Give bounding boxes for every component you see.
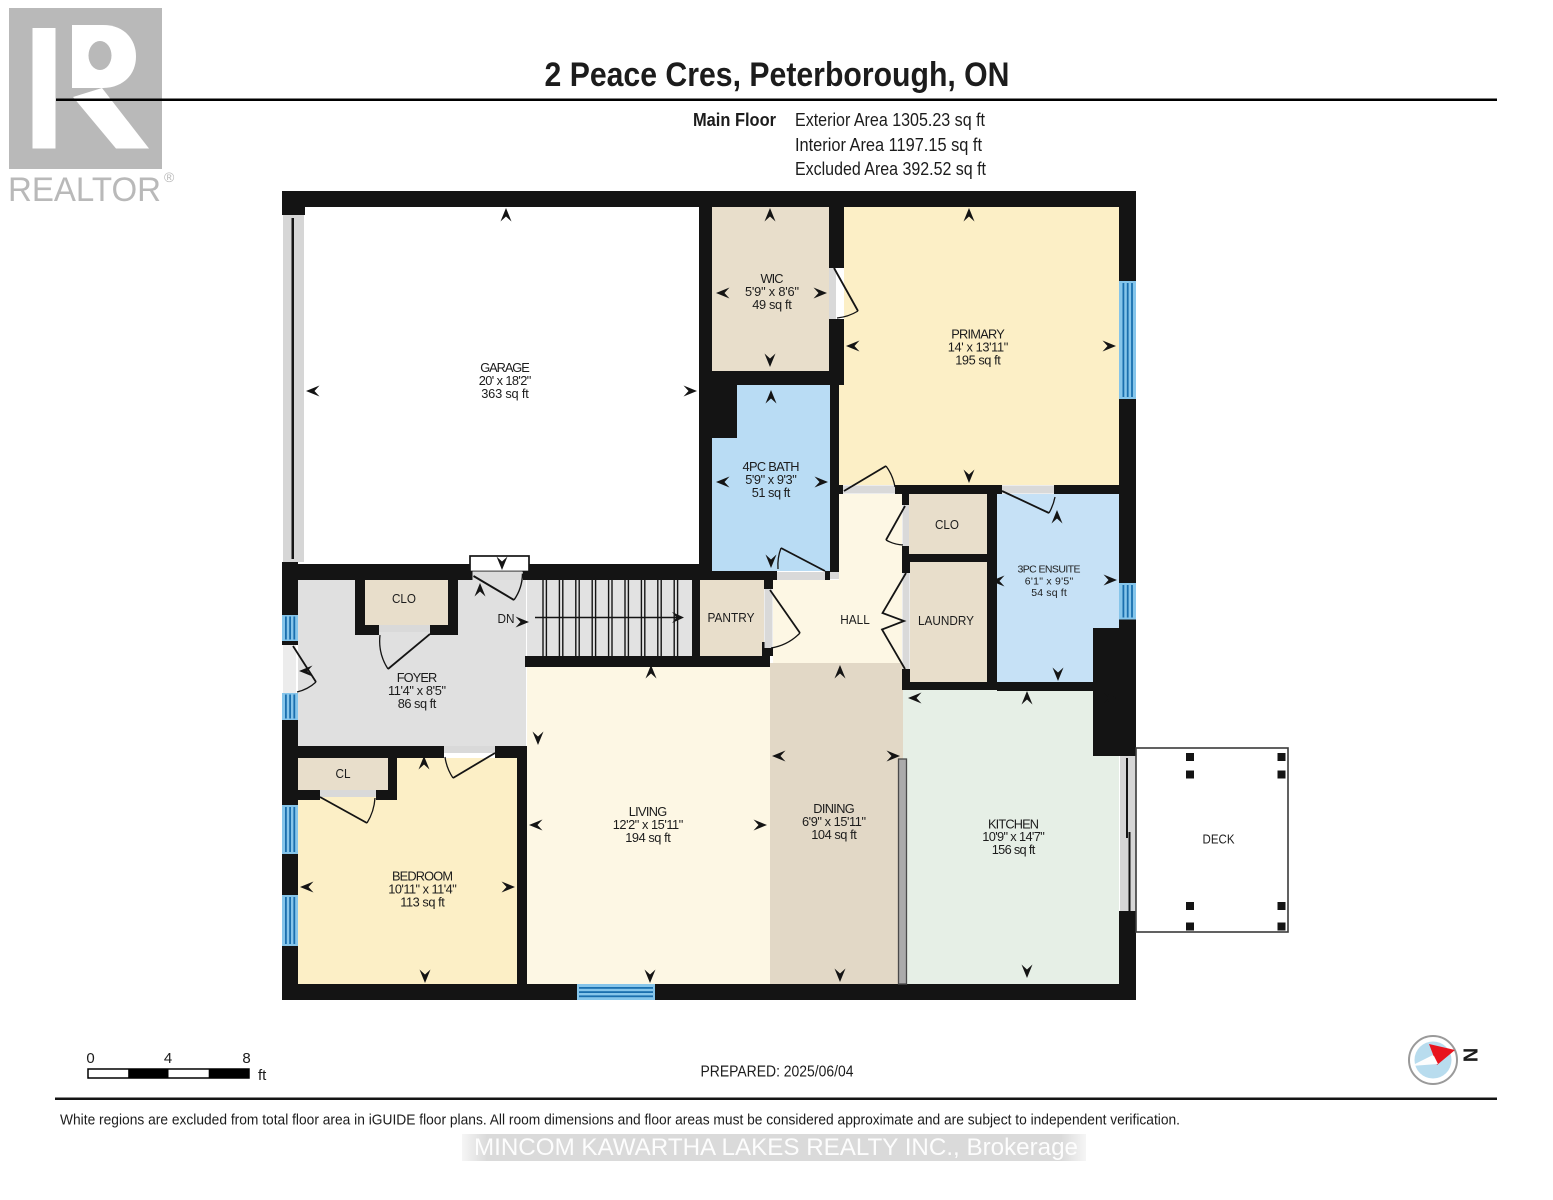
- svg-text:CLO: CLO: [392, 591, 416, 606]
- svg-text:LAUNDRY: LAUNDRY: [918, 613, 974, 628]
- svg-text:113 sq ft: 113 sq ft: [400, 895, 445, 910]
- svg-text:6'1" x 9'5": 6'1" x 9'5": [1025, 576, 1074, 588]
- svg-text:0: 0: [86, 1050, 94, 1067]
- svg-text:DN: DN: [498, 611, 515, 626]
- svg-text:PREPARED: 2025/06/04: PREPARED: 2025/06/04: [701, 1064, 854, 1081]
- svg-text:195 sq ft: 195 sq ft: [955, 353, 1001, 368]
- svg-text:Interior Area 1197.15 sq ft: Interior Area 1197.15 sq ft: [795, 135, 982, 155]
- svg-text:156 sq ft: 156 sq ft: [992, 842, 1036, 857]
- svg-text:CL: CL: [336, 766, 351, 781]
- svg-text:REALTOR: REALTOR: [8, 171, 161, 209]
- svg-text:ft: ft: [258, 1067, 267, 1084]
- svg-text:51 sq ft: 51 sq ft: [752, 485, 791, 500]
- svg-text:104 sq ft: 104 sq ft: [811, 827, 857, 842]
- svg-text:4: 4: [164, 1050, 172, 1067]
- svg-text:Exterior Area 1305.23 sq ft: Exterior Area 1305.23 sq ft: [795, 110, 985, 130]
- svg-text:PANTRY: PANTRY: [708, 610, 755, 625]
- svg-text:MINCOM KAWARTHA LAKES REALTY I: MINCOM KAWARTHA LAKES REALTY INC., Broke…: [474, 1134, 1078, 1161]
- svg-text:CLO: CLO: [935, 517, 959, 532]
- svg-text:Main Floor: Main Floor: [693, 110, 776, 130]
- svg-text:N: N: [1459, 1048, 1481, 1062]
- svg-text:363 sq ft: 363 sq ft: [481, 386, 529, 401]
- svg-text:White regions are excluded fro: White regions are excluded from total fl…: [60, 1112, 1180, 1129]
- svg-text:86 sq ft: 86 sq ft: [398, 696, 437, 711]
- svg-text:49 sq ft: 49 sq ft: [752, 297, 792, 312]
- svg-text:194 sq ft: 194 sq ft: [625, 830, 671, 845]
- svg-text:54 sq ft: 54 sq ft: [1031, 587, 1067, 599]
- svg-text:3PC ENSUITE: 3PC ENSUITE: [1018, 564, 1081, 576]
- svg-text:®: ®: [164, 169, 175, 185]
- svg-text:HALL: HALL: [840, 612, 870, 627]
- svg-text:2 Peace Cres, Peterborough, ON: 2 Peace Cres, Peterborough, ON: [545, 56, 1010, 94]
- svg-text:Excluded Area 392.52 sq ft: Excluded Area 392.52 sq ft: [795, 159, 986, 179]
- svg-text:8: 8: [242, 1050, 250, 1067]
- svg-text:DECK: DECK: [1203, 832, 1235, 847]
